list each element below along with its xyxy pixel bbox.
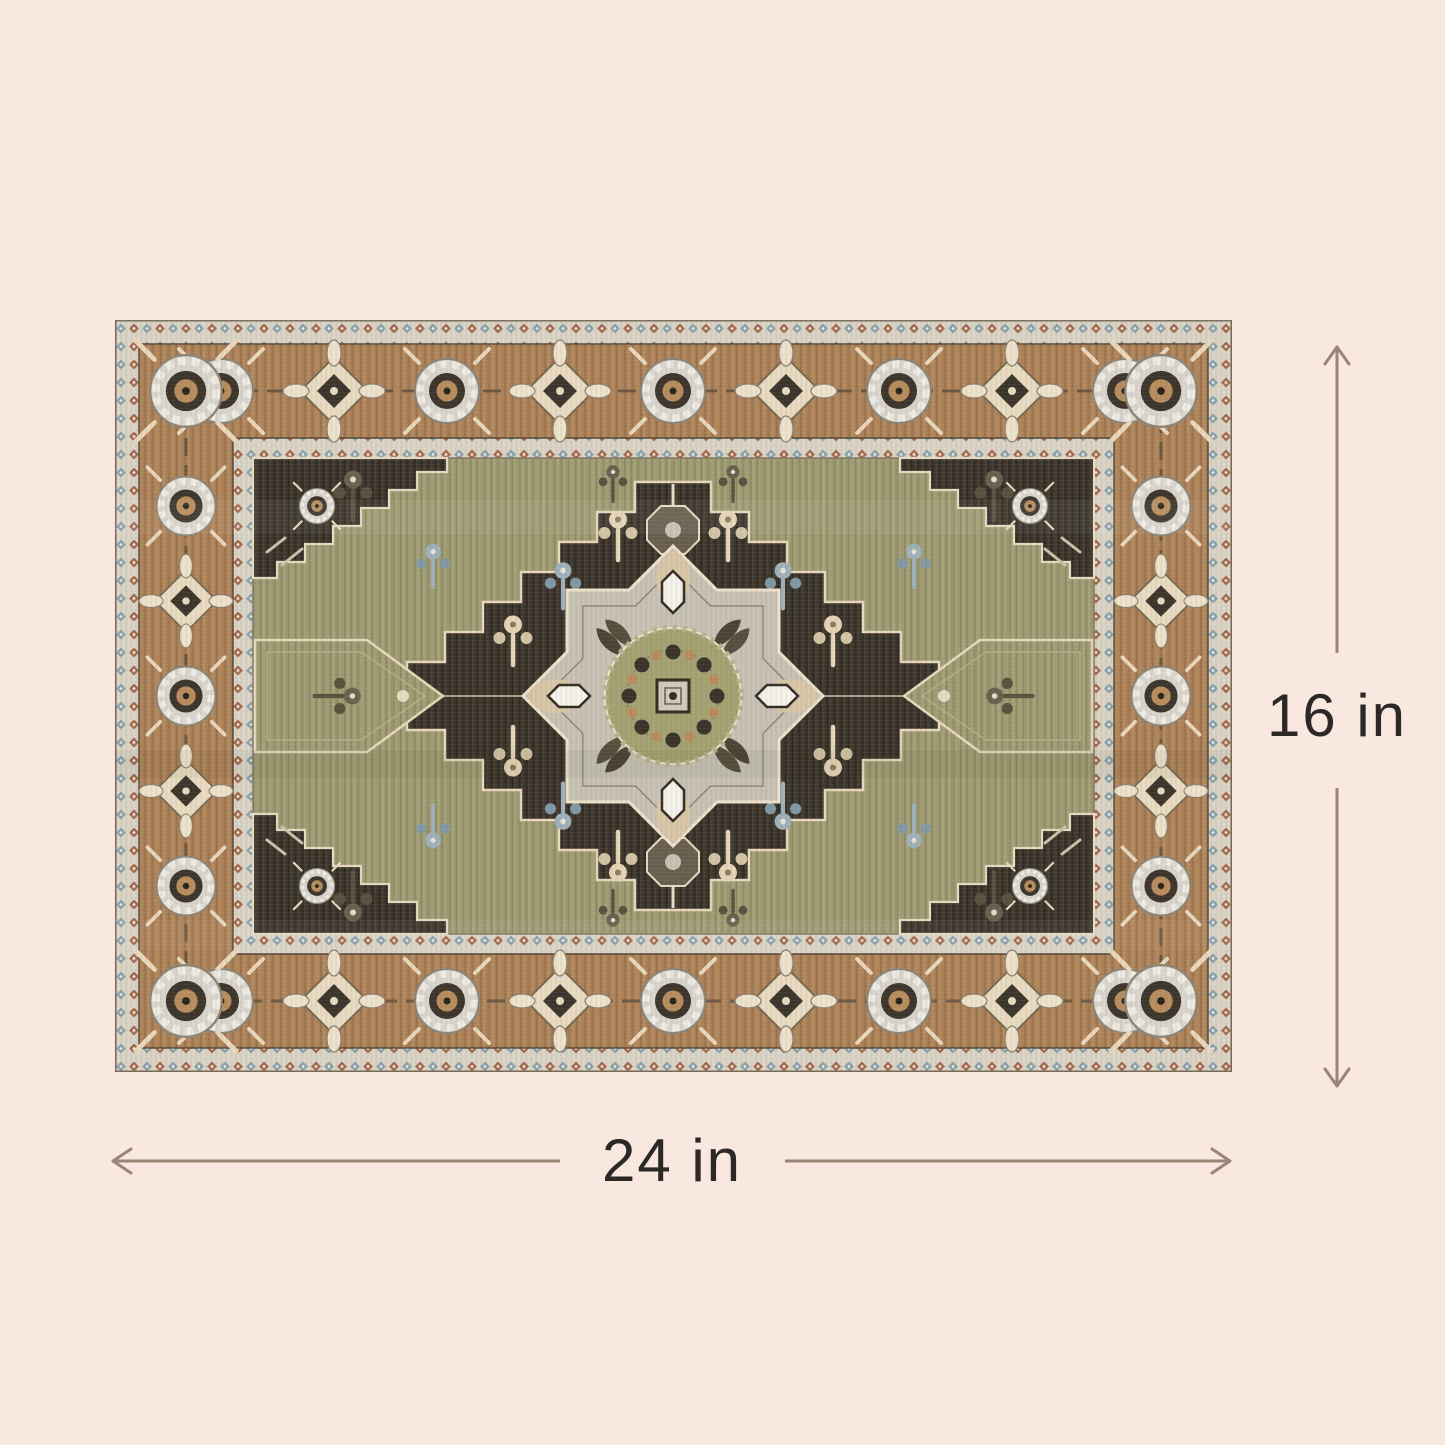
width-label: 24 in bbox=[602, 1131, 742, 1191]
rug-image bbox=[115, 320, 1232, 1072]
rug-illustration bbox=[115, 320, 1232, 1072]
product-dimension-canvas: 16 in 24 in bbox=[0, 0, 1445, 1445]
height-label: 16 in bbox=[1267, 686, 1407, 746]
